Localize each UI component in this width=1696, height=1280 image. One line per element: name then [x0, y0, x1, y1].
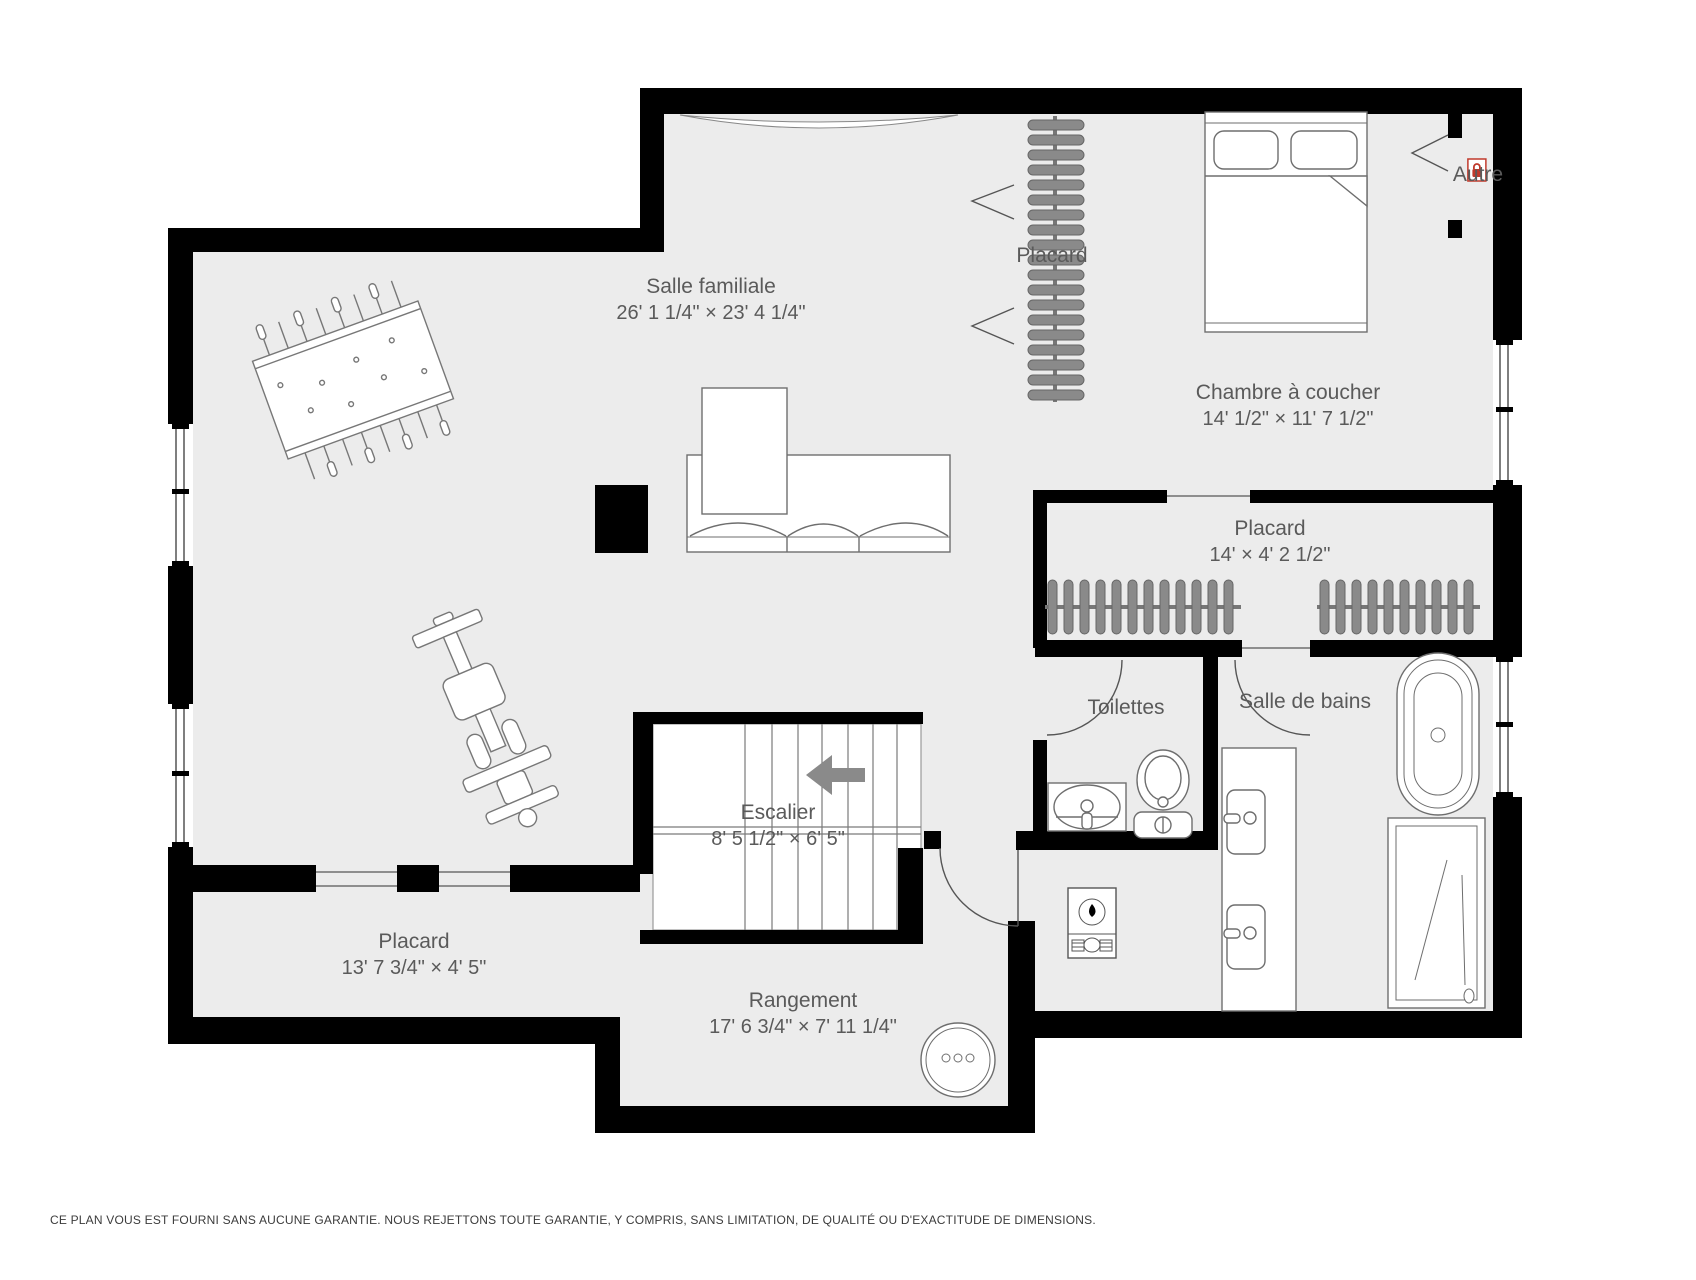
disclaimer-text: CE PLAN VOUS EST FOURNI SANS AUCUNE GARA…	[50, 1213, 1096, 1227]
window-left-upper	[168, 424, 193, 566]
room-label-placard-14: Placard 14' × 4' 2 1/2"	[1210, 516, 1331, 568]
water-heater-tank	[921, 1023, 995, 1097]
window-bedroom	[1493, 340, 1522, 485]
room-label-placard-haut: Placard	[1016, 243, 1087, 269]
room-label-rangement: Rangement 17' 6 3/4" × 7' 11 1/4"	[709, 988, 897, 1040]
toilet	[1134, 750, 1192, 838]
shower	[1388, 818, 1485, 1008]
room-label-escalier: Escalier 8' 5 1/2" × 6' 5"	[711, 800, 845, 852]
room-label-salle-familiale: Salle familiale 26' 1 1/4" × 23' 4 1/4"	[616, 274, 805, 326]
floor-plan-drawing	[0, 0, 1696, 1280]
bathroom-vanity	[1222, 748, 1296, 1011]
window-left-lower	[168, 704, 193, 847]
room-label-placard-bas: Placard 13' 7 3/4" × 4' 5"	[342, 929, 487, 981]
window-bathroom	[1493, 657, 1522, 797]
floor-plan-page: Salle familiale 26' 1 1/4" × 23' 4 1/4" …	[0, 0, 1696, 1280]
room-label-autre: Autre	[1453, 162, 1503, 188]
bed	[1205, 112, 1367, 332]
furnace	[1068, 888, 1116, 958]
bathtub	[1397, 653, 1479, 815]
room-label-salle-de-bains: Salle de bains	[1239, 689, 1371, 715]
room-label-chambre: Chambre à coucher 14' 1/2" × 11' 7 1/2"	[1196, 380, 1380, 432]
powder-room-sink	[1048, 783, 1126, 831]
room-label-toilettes: Toilettes	[1087, 695, 1164, 721]
structural-column	[595, 485, 648, 553]
